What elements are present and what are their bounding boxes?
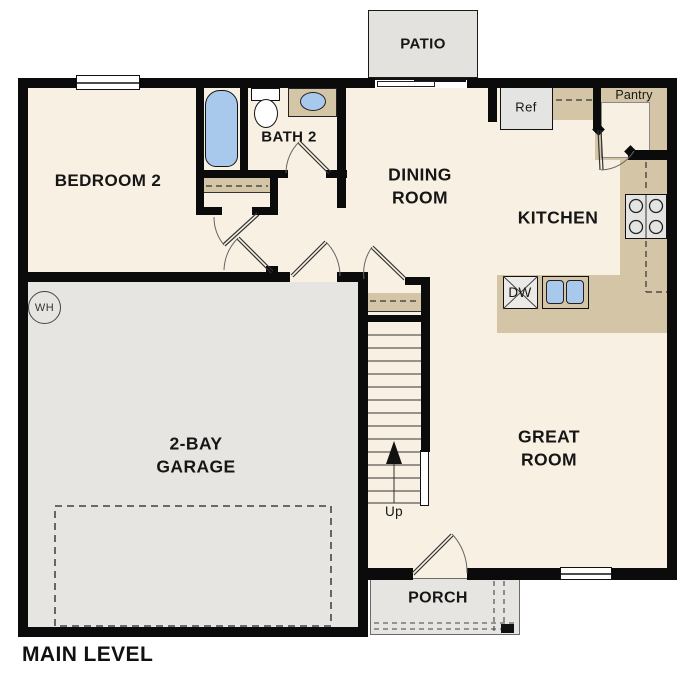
porch-label: PORCH bbox=[408, 589, 468, 610]
wall-segment bbox=[488, 88, 497, 122]
wall-segment bbox=[18, 627, 368, 637]
wall-segment bbox=[266, 266, 278, 275]
wall-segment bbox=[196, 170, 288, 178]
vanity-sink bbox=[300, 92, 326, 111]
wall-segment bbox=[368, 315, 421, 322]
bedroom-closet-shelf bbox=[204, 178, 270, 193]
stairs-up-label: Up bbox=[385, 503, 403, 521]
water-heater-label: WH bbox=[35, 300, 54, 314]
wall-segment bbox=[612, 568, 677, 580]
sink-basin-left bbox=[546, 280, 564, 304]
plan-title: MAIN LEVEL bbox=[22, 643, 153, 667]
wall-segment bbox=[358, 272, 368, 637]
great-room-window bbox=[560, 567, 612, 580]
bedroom-window bbox=[76, 75, 140, 90]
bedroom2-label: BEDROOM 2 bbox=[55, 170, 162, 192]
wall-segment bbox=[18, 272, 290, 282]
wall-segment bbox=[421, 277, 430, 452]
wall-segment bbox=[196, 207, 222, 215]
wall-segment bbox=[196, 88, 204, 215]
great-room-label: GREATROOM bbox=[518, 425, 580, 471]
dining-room-label: DININGROOM bbox=[388, 163, 452, 209]
bath2-label: BATH 2 bbox=[261, 127, 316, 147]
garage-label: 2-BAYGARAGE bbox=[156, 432, 235, 478]
wall-segment bbox=[18, 78, 28, 637]
wall-segment bbox=[240, 88, 248, 178]
sliding-door-panel bbox=[377, 81, 435, 87]
kitchen-label: KITCHEN bbox=[518, 207, 599, 230]
stair-handrail bbox=[420, 450, 429, 506]
range-stove bbox=[625, 194, 667, 239]
wall-segment bbox=[140, 78, 375, 88]
wall-segment bbox=[467, 568, 560, 580]
sink-basin-right bbox=[566, 280, 584, 304]
wall-segment bbox=[252, 207, 278, 215]
refrigerator-label: Ref bbox=[515, 100, 536, 117]
toilet-bowl bbox=[254, 99, 278, 128]
pantry-label: Pantry bbox=[615, 87, 652, 103]
coat-closet-shelf bbox=[368, 293, 421, 312]
patio-label: PATIO bbox=[400, 34, 446, 54]
wall-segment bbox=[337, 88, 346, 208]
ref-side-counter bbox=[553, 88, 593, 120]
bathtub bbox=[205, 90, 238, 167]
floor-plan: BEDROOM 2 BATH 2 DININGROOM KITCHEN GREA… bbox=[0, 0, 687, 687]
wall-segment bbox=[337, 272, 358, 282]
dishwasher-label: DW bbox=[508, 284, 531, 302]
